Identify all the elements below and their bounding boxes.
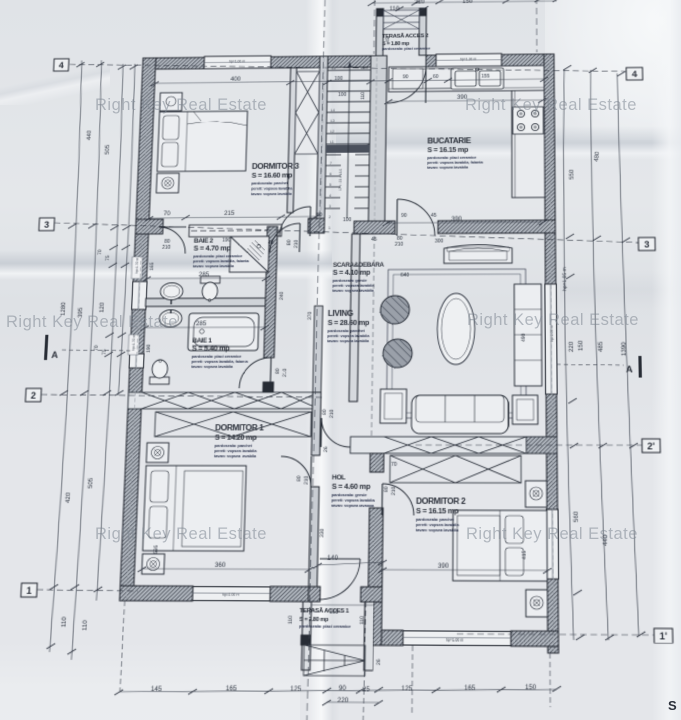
svg-text:210: 210 (293, 239, 300, 248)
svg-text:TERASĂ ACCES 1: TERASĂ ACCES 1 (299, 607, 349, 615)
svg-text:120: 120 (99, 302, 106, 312)
svg-text:110: 110 (359, 616, 366, 625)
svg-text:240: 240 (279, 291, 286, 300)
svg-text:L5: L5 (332, 66, 336, 70)
svg-text:90: 90 (339, 685, 346, 692)
svg-text:17 t : 23 x 16.5: 17 t : 23 x 16.5 (338, 169, 343, 191)
svg-text:1: 1 (26, 585, 32, 596)
svg-text:3: 3 (329, 204, 331, 208)
svg-text:BAIE 2: BAIE 2 (194, 237, 214, 244)
svg-text:400: 400 (230, 77, 240, 83)
svg-text:pardoseala: gresie: pardoseala: gresie (332, 493, 367, 497)
svg-text:2: 2 (31, 390, 37, 401)
svg-text:pereti: vopsea lavabila: pereti: vopsea lavabila (251, 187, 293, 191)
svg-text:6: 6 (330, 172, 332, 176)
svg-text:640: 640 (400, 272, 409, 278)
svg-text:L3: L3 (331, 119, 335, 123)
svg-text:1': 1' (659, 630, 667, 642)
svg-text:165: 165 (329, 609, 338, 616)
svg-text:4: 4 (59, 60, 65, 70)
svg-text:100: 100 (338, 92, 347, 98)
svg-text:595: 595 (153, 545, 160, 554)
svg-text:DORMITOR 1: DORMITOR 1 (215, 423, 265, 433)
svg-text:SCARA&DEBARA: SCARA&DEBARA (333, 262, 385, 269)
svg-text:70: 70 (93, 345, 100, 351)
svg-text:155: 155 (481, 73, 490, 79)
svg-text:pereti: vopsea lavabila: pereti: vopsea lavabila (416, 523, 460, 528)
svg-text:pereti: vopsea lavabila: pereti: vopsea lavabila (332, 284, 375, 288)
svg-text:80: 80 (164, 239, 170, 245)
svg-text:pardoseala: placi ceramice: pardoseala: placi ceramice (192, 354, 242, 358)
svg-text:tavan: vopsea lavabila: tavan: vopsea lavabila (416, 528, 460, 533)
svg-text:485: 485 (598, 342, 605, 352)
svg-text:pereti: vopsea lavabila, faian: pereti: vopsea lavabila, faianta (427, 160, 484, 164)
svg-text:3: 3 (44, 219, 50, 229)
svg-text:210: 210 (329, 409, 336, 418)
svg-text:4: 4 (632, 69, 638, 79)
svg-text:100: 100 (343, 217, 352, 223)
svg-text:505: 505 (105, 145, 112, 155)
svg-text:45: 45 (385, 37, 391, 43)
svg-text:45: 45 (268, 240, 274, 246)
svg-text:370: 370 (307, 311, 314, 320)
svg-text:1: 1 (328, 226, 330, 230)
svg-text:150: 150 (578, 341, 585, 351)
svg-text:L1: L1 (330, 140, 334, 144)
svg-text:HOL: HOL (332, 474, 346, 482)
svg-text:pardoseala: parchet: pardoseala: parchet (251, 181, 288, 185)
svg-text:70: 70 (391, 462, 397, 469)
svg-text:DORMITOR 2: DORMITOR 2 (416, 496, 465, 506)
svg-text:hp=1.05 m: hp=1.05 m (562, 267, 569, 291)
svg-text:190: 190 (145, 344, 152, 353)
svg-text:5: 5 (329, 183, 331, 187)
svg-text:560: 560 (573, 511, 580, 522)
svg-text:tavan: vopsea lavabila: tavan: vopsea lavabila (331, 503, 374, 508)
svg-text:pardoseala: parchet: pardoseala: parchet (327, 329, 365, 333)
svg-text:100: 100 (334, 76, 343, 82)
svg-text:S = 16.60 mp: S = 16.60 mp (251, 172, 292, 179)
svg-text:26: 26 (376, 659, 383, 666)
svg-text:125: 125 (401, 686, 412, 693)
svg-text:210: 210 (303, 476, 310, 485)
svg-text:300: 300 (435, 238, 444, 244)
svg-text:pereti: vopsea lavabila: pereti: vopsea lavabila (214, 449, 257, 453)
svg-text:pardoseala: gresie: pardoseala: gresie (333, 279, 367, 283)
svg-text:S = 14.20 mp: S = 14.20 mp (215, 434, 257, 442)
svg-text:S = 16.15 mp: S = 16.15 mp (416, 508, 459, 516)
svg-text:S = 28.60 mp: S = 28.60 mp (328, 320, 370, 328)
svg-text:7: 7 (330, 161, 332, 165)
svg-text:80: 80 (383, 486, 390, 492)
svg-text:BAIE 1: BAIE 1 (192, 337, 213, 344)
svg-text:110: 110 (82, 620, 89, 631)
svg-text:360: 360 (215, 562, 226, 569)
svg-text:tavan: vopsea lavabila: tavan: vopsea lavabila (427, 165, 469, 169)
svg-text:215: 215 (224, 211, 235, 217)
svg-text:80: 80 (397, 236, 403, 242)
svg-text:45: 45 (431, 213, 437, 219)
svg-text:pereti: vopsea lavabila: pereti: vopsea lavabila (327, 334, 370, 338)
svg-text:2: 2 (329, 215, 331, 219)
svg-text:420: 420 (65, 492, 72, 503)
svg-text:pardoseala: placi ceramice: pardoseala: placi ceramice (382, 47, 430, 51)
svg-text:4: 4 (329, 194, 331, 198)
svg-text:DORMITOR 3: DORMITOR 3 (252, 161, 299, 171)
svg-text:90: 90 (403, 74, 409, 80)
svg-text:S = 16.15 mp: S = 16.15 mp (427, 147, 468, 154)
svg-text:80: 80 (316, 212, 322, 218)
svg-text:S = 2.80 mp: S = 2.80 mp (299, 616, 328, 623)
svg-text:hp=1.00 m: hp=1.00 m (222, 592, 240, 597)
svg-text:550: 550 (569, 170, 576, 180)
svg-text:70: 70 (163, 211, 170, 217)
svg-text:110: 110 (61, 617, 68, 628)
svg-text:3: 3 (644, 239, 650, 250)
svg-text:S = 4.10 mp: S = 4.10 mp (333, 269, 371, 276)
svg-text:110: 110 (360, 92, 366, 100)
svg-text:210: 210 (390, 486, 397, 495)
svg-text:390: 390 (451, 216, 461, 222)
svg-text:hp=1.30 m: hp=1.30 m (460, 57, 477, 61)
svg-text:S = 4.60 mp: S = 4.60 mp (332, 483, 371, 491)
svg-text:220: 220 (414, 0, 424, 5)
svg-text:75: 75 (101, 349, 108, 355)
svg-text:tavan: vopsea lavabila: tavan: vopsea lavabila (251, 192, 293, 196)
svg-text:220: 220 (337, 698, 348, 705)
svg-text:80: 80 (275, 368, 282, 374)
svg-text:480: 480 (594, 151, 602, 162)
svg-text:110: 110 (389, 6, 399, 12)
svg-text:1390: 1390 (621, 342, 628, 356)
svg-text:165: 165 (464, 685, 475, 692)
svg-text:210: 210 (162, 245, 171, 251)
svg-text:tavan: vopsea lavabila: tavan: vopsea lavabila (214, 454, 257, 458)
svg-text:150: 150 (462, 0, 472, 5)
svg-text:190: 190 (222, 237, 231, 243)
svg-text:pardoseala: placi ceramice: pardoseala: placi ceramice (193, 254, 242, 258)
svg-text:165: 165 (226, 686, 237, 693)
svg-text:390: 390 (438, 563, 449, 570)
svg-text:pardoseala: placi ceramice: pardoseala: placi ceramice (299, 624, 351, 629)
svg-text:210: 210 (282, 368, 289, 377)
svg-text:pardoseala: placi ceramice: pardoseala: placi ceramice (427, 156, 476, 160)
svg-text:505: 505 (88, 478, 95, 489)
svg-text:210: 210 (395, 241, 404, 247)
svg-text:pereti: vopsea lavabila, faian: pereti: vopsea lavabila, faianta (193, 259, 250, 263)
svg-text:490: 490 (520, 333, 527, 342)
svg-text:80: 80 (321, 409, 328, 415)
svg-text:80: 80 (286, 239, 293, 245)
svg-text:415: 415 (521, 550, 528, 559)
svg-text:L4: L4 (331, 108, 335, 112)
svg-text:330: 330 (319, 528, 326, 537)
svg-text:70: 70 (97, 249, 104, 255)
svg-text:90: 90 (401, 213, 407, 219)
svg-text:tavan: vopsea lavabila: tavan: vopsea lavabila (191, 365, 234, 369)
svg-text:145: 145 (151, 686, 162, 693)
svg-text:440: 440 (86, 130, 93, 140)
svg-text:pereti: vopsea lavabila, faian: pereti: vopsea lavabila, faianta (191, 360, 249, 364)
svg-text:L2: L2 (330, 130, 334, 134)
svg-text:165: 165 (149, 262, 156, 271)
svg-text:285: 285 (199, 272, 210, 278)
svg-text:pereti: vopsea lavabila: pereti: vopsea lavabila (331, 498, 375, 503)
svg-text:140: 140 (327, 555, 338, 562)
svg-text:tavan: vopsea lavabila: tavan: vopsea lavabila (193, 264, 235, 268)
svg-text:285: 285 (196, 321, 207, 327)
svg-text:pardoseala: parchet: pardoseala: parchet (214, 444, 252, 448)
svg-text:pardoseala: parchet: pardoseala: parchet (416, 517, 455, 522)
svg-text:60: 60 (433, 74, 439, 80)
svg-text:hp=1.70 m: hp=1.70 m (131, 334, 136, 351)
svg-text:tavan: vopsea lavabila: tavan: vopsea lavabila (327, 339, 370, 343)
svg-text:S = 4.70 mp: S = 4.70 mp (193, 245, 230, 252)
svg-text:26: 26 (323, 446, 330, 452)
svg-text:hp=1.00 m: hp=1.00 m (229, 59, 245, 63)
svg-text:tavan: vopsea lavabila: tavan: vopsea lavabila (332, 289, 374, 293)
svg-text:220: 220 (569, 342, 576, 352)
svg-text:110: 110 (287, 615, 294, 624)
svg-text:80: 80 (296, 475, 303, 481)
svg-text:150: 150 (525, 685, 536, 692)
svg-text:S = 5.40 mp: S = 5.40 mp (192, 345, 230, 353)
svg-text:LIVING: LIVING (328, 308, 354, 318)
svg-text:2': 2' (647, 441, 655, 452)
svg-text:125: 125 (290, 686, 301, 693)
svg-text:hp=1.70 m: hp=1.70 m (135, 257, 140, 273)
svg-text:75: 75 (105, 255, 112, 261)
svg-text:BUCATARIE: BUCATARIE (427, 136, 471, 146)
svg-text:hp=1.00 m: hp=1.00 m (446, 637, 464, 642)
svg-text:A: A (51, 349, 58, 360)
svg-text:45: 45 (371, 237, 377, 243)
